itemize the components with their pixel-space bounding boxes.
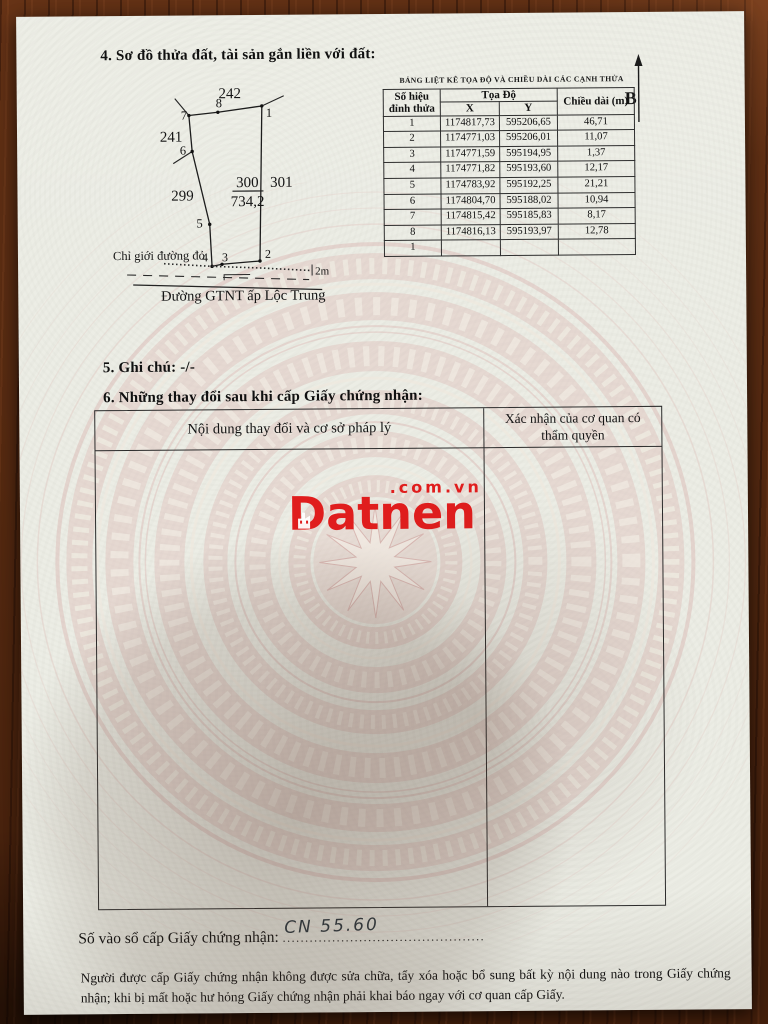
plot-number: 300: [236, 175, 259, 191]
plot-area: 734,2: [231, 194, 265, 210]
coord-x: [441, 240, 500, 256]
vertex-id: 6: [384, 194, 441, 210]
coord-y: 595206,01: [500, 130, 558, 146]
registry-handwritten-value: CN 55.60: [284, 915, 379, 938]
road-centerline: [127, 274, 309, 281]
edge-length: 11,07: [558, 130, 635, 146]
photo-of-land-certificate: { "sections": { "s4": "4. Sơ đồ thửa đất…: [0, 0, 768, 1024]
vertex-id: 3: [384, 147, 441, 163]
coord-row: 1: [384, 239, 635, 257]
adjacent-plot-301: 301: [270, 175, 293, 191]
north-arrow-head: [634, 54, 642, 66]
coord-x: 1174771,59: [441, 146, 500, 162]
edge-length: 12,78: [558, 223, 635, 239]
coord-x: 1174783,92: [441, 178, 500, 194]
registry-number-line: Số vào sổ cấp Giấy chứng nhận: .........…: [78, 927, 485, 948]
col-x-header: X: [440, 102, 499, 116]
vertex-id: 8: [384, 225, 441, 241]
footer-warning-note: Người được cấp Giấy chứng nhận không đượ…: [81, 963, 731, 1008]
vertex-2: 2: [265, 247, 271, 261]
registry-label: Số vào sổ cấp Giấy chứng nhận:: [78, 929, 279, 948]
edge-length: 12,17: [558, 161, 635, 177]
vertex-id: 7: [384, 209, 441, 225]
vertex-3: 3: [222, 250, 228, 264]
changes-col2-header: Xác nhận của cơ quan có thẩm quyền: [484, 407, 661, 448]
section6-heading: 6. Những thay đổi sau khi cấp Giấy chứng…: [103, 388, 423, 408]
red-line-label: Chỉ giới đường đỏ: [113, 248, 205, 263]
coord-y: 595185,83: [500, 208, 558, 224]
land-plot-diagram: 242 241 299 301 300 734,2 7 8 1 6 5 4 3 …: [90, 82, 342, 332]
coord-y: 595193,60: [500, 162, 558, 178]
building-icon: [297, 510, 313, 530]
section4-heading: 4. Sơ đồ thửa đất, tài sản gắn liền với …: [100, 46, 375, 65]
coord-x: 1174815,42: [441, 209, 500, 225]
section5-heading: 5. Ghi chú: -/-: [103, 359, 195, 377]
edge-length: 8,17: [558, 208, 635, 224]
col-length-header: Chiều dài (m): [557, 88, 634, 115]
road-width-label: 2m: [315, 265, 330, 277]
edge-length: 1,37: [558, 145, 635, 161]
vertex-5: 5: [196, 216, 202, 230]
coord-x: 1174771,82: [441, 162, 500, 178]
coord-y: 595192,25: [500, 177, 558, 193]
edge-length: 46,71: [557, 114, 634, 130]
coord-y: [500, 239, 558, 255]
col-coords-header: Tọa Độ: [440, 88, 557, 102]
adjacent-plot-299: 299: [171, 188, 194, 204]
coordinate-table: Số hiệu đỉnh thửa Tọa Độ Chiều dài (m) X…: [383, 87, 636, 257]
coord-x: 1174817,73: [440, 115, 499, 131]
coord-x: 1174816,13: [441, 224, 500, 240]
coordinate-table-title: BẢNG LIỆT KÊ TỌA ĐỘ VÀ CHIỀU DÀI CÁC CẠN…: [383, 74, 641, 85]
coord-y: 595193,97: [500, 224, 558, 240]
coord-y: 595206,65: [499, 115, 557, 131]
brand-name: Datnen: [288, 489, 476, 536]
edge-length: [558, 239, 635, 255]
vertex-1: 1: [266, 106, 272, 120]
vertex-id: 5: [384, 178, 441, 194]
coord-x: 1174771,03: [441, 131, 500, 147]
coord-header-row: Số hiệu đỉnh thửa Tọa Độ Chiều dài (m): [383, 88, 634, 103]
vertex-7: 7: [181, 109, 187, 123]
coord-x: 1174804,70: [441, 193, 500, 209]
road-name-label: Đường GTNT ấp Lộc Trung: [161, 287, 325, 304]
edge-length: 10,94: [558, 192, 635, 208]
vertex-id: 4: [384, 162, 441, 178]
col-y-header: Y: [499, 101, 557, 115]
registry-dotted-leader: ........................................…: [283, 927, 486, 947]
vertex-8: 8: [216, 96, 222, 110]
changes-body-col2: [484, 447, 665, 906]
vertex-id: 2: [384, 131, 441, 147]
vertex-id: 1: [384, 240, 441, 256]
coord-y: 595194,95: [500, 146, 558, 162]
vertex-id: 1: [383, 116, 440, 132]
coordinate-table-block: BẢNG LIỆT KÊ TỌA ĐỘ VÀ CHIỀU DÀI CÁC CẠN…: [383, 74, 642, 257]
coord-y: 595188,02: [500, 193, 558, 209]
red-line-boundary: [164, 263, 312, 272]
boundary-spur-1: [262, 96, 284, 106]
vertex-6: 6: [180, 144, 186, 158]
changes-col1-header: Nội dung thay đổi và cơ sở pháp lý: [95, 408, 484, 451]
datnen-watermark-logo: .com.vn Datnen: [288, 477, 485, 549]
certificate-page: 4. Sơ đồ thửa đất, tài sản gắn liền với …: [16, 11, 752, 1015]
edge-length: 21,21: [558, 177, 635, 193]
col-vertex-header: Số hiệu đỉnh thửa: [383, 89, 440, 116]
